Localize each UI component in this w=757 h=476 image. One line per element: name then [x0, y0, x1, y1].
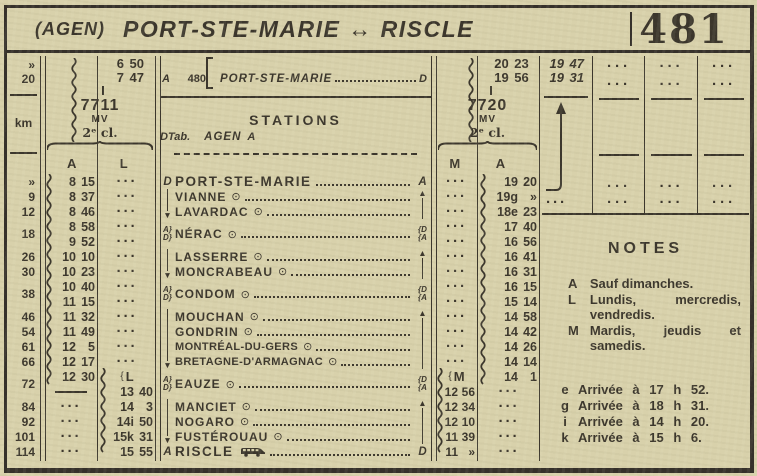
station-symbol-icon: ⊙: [231, 190, 240, 203]
no-service-row: ···: [436, 264, 477, 279]
station-row: ARISCLED: [160, 444, 431, 459]
km-value: 101: [7, 429, 40, 444]
note-key: A: [568, 276, 590, 291]
stations-title: STATIONS: [160, 112, 431, 128]
brace-icon: [47, 141, 153, 150]
note-text: Mardis, jeudis et samedis.: [590, 323, 741, 353]
km-value: 38: [7, 279, 40, 309]
no-service-row: ···: [479, 399, 539, 414]
time-cell: 846: [45, 204, 97, 219]
time-cell: 1442: [479, 324, 539, 339]
tab-label: Tab.: [168, 131, 190, 143]
notes-title: NOTES: [542, 240, 749, 258]
station-symbol-icon: ⊙: [328, 355, 337, 368]
no-service-row: ···: [99, 249, 155, 264]
time-cell: 1132: [45, 309, 97, 324]
note-key: M: [568, 323, 590, 353]
train-m-column: ·······································{…: [436, 174, 477, 459]
time-cell: 1555: [99, 444, 155, 459]
arrive-psm-time: 747: [71, 71, 144, 84]
no-service-row: ···: [99, 294, 155, 309]
time-cell: 1340: [99, 384, 155, 399]
ref-station: PORT-STE-MARIE: [220, 73, 332, 85]
dot-leader: [270, 454, 410, 456]
station-row: GONDRIN⊙: [160, 324, 431, 339]
no-service-row: ···: [45, 414, 97, 429]
no-service-row: ···: [436, 204, 477, 219]
train-type: MV: [436, 114, 539, 125]
depart-letter: D: [419, 73, 429, 85]
empty-train-column: ············: [699, 56, 749, 213]
left-direction-glyph: [160, 324, 175, 339]
note-key: k: [552, 430, 578, 446]
no-service-row: ···: [99, 219, 155, 234]
time-cell: 952: [45, 234, 97, 249]
no-service-row: ···: [436, 279, 477, 294]
arrive-letter: A: [247, 131, 255, 143]
station-row: A}D}NÉRAC⊙{D{A: [160, 219, 431, 249]
up-arrow-connector-icon: [544, 100, 590, 198]
km-value: 54: [7, 324, 40, 339]
station-symbol-icon: ⊙: [240, 415, 249, 428]
note-text: Arrivée à 14 h 20.: [578, 414, 745, 430]
dot-leader: [263, 319, 410, 321]
time-cell: 837: [45, 189, 97, 204]
km-value: 114: [7, 444, 40, 459]
station-row: VIANNE⊙▲: [160, 189, 431, 204]
arrival-note-row: gArrivée à 18 h 31.: [552, 398, 745, 414]
down-arrow-icon: ▼: [163, 271, 171, 280]
station-symbol-icon: ⊙: [273, 430, 282, 443]
no-service-row: ···: [99, 309, 155, 324]
dot-leader: [335, 80, 416, 82]
station-row: ▼MONCRABEAU⊙: [160, 264, 431, 279]
station-name: EAUZE: [175, 377, 221, 391]
km-value: 30: [7, 264, 40, 279]
table-frame: (AGEN) PORT-STE-MARIE ↔ RISCLE 481 » 20 …: [4, 5, 754, 473]
up-arrow-icon: ▲: [418, 309, 426, 318]
time-cell: 1023: [45, 264, 97, 279]
time-cell: 1426: [479, 339, 539, 354]
km-psm: 20: [22, 72, 35, 86]
station-symbol-icon: ⊙: [253, 250, 262, 263]
left-direction-glyph: [160, 189, 175, 204]
station-symbol-icon: ⊙: [303, 340, 312, 353]
no-service-row: ···: [45, 429, 97, 444]
up-arrow-icon: ▲: [418, 399, 426, 408]
bus-icon: [240, 446, 266, 457]
note-legend-row: LLundis, mercredis, vendredis.: [568, 292, 741, 322]
right-direction-glyph: [414, 429, 431, 444]
station-row: A}D}EAUZE⊙{D{A: [160, 369, 431, 399]
left-direction-glyph: ▼: [160, 204, 175, 219]
time-cell: 125: [45, 339, 97, 354]
train-number: 7720: [436, 97, 539, 115]
dot-leader: [267, 259, 410, 261]
note-legend-row: MMardis, jeudis et samedis.: [568, 323, 741, 353]
arrive-letter: A: [162, 73, 176, 85]
no-service-row: ···: [45, 444, 97, 459]
no-service-row: ···: [99, 234, 155, 249]
station-symbol-icon: ⊙: [226, 378, 235, 391]
down-arrow-icon: ▼: [163, 361, 171, 370]
note-text: Lundis, mercredis, vendredis.: [590, 292, 741, 322]
note-text: Arrivée à 15 h 6.: [578, 430, 745, 446]
note-text: Arrivée à 17 h 52.: [578, 382, 745, 398]
station-name: MANCIET: [175, 400, 237, 414]
km-unit-label: km: [7, 116, 40, 130]
right-direction-glyph: ▲: [414, 399, 431, 414]
time-cell: 15k31: [99, 429, 155, 444]
arrival-note-row: iArrivée à 14 h 20.: [552, 414, 745, 430]
time-cell: 1149: [45, 324, 97, 339]
ref-row-psm: A 480 PORT-STE-MARIE D: [162, 72, 429, 85]
depart-letter: D: [160, 131, 168, 143]
dot-leader: [316, 184, 410, 186]
right-direction-glyph: [414, 264, 431, 279]
no-service-row: ···: [479, 384, 539, 399]
no-service-dots: ···: [499, 443, 520, 460]
down-arrow-icon: ▼: [163, 211, 171, 220]
note-legend-row: ASauf dimanches.: [568, 276, 741, 291]
station-row: LASSERRE⊙▲: [160, 249, 431, 264]
no-service-row: ···: [99, 189, 155, 204]
bidirectional-arrow-icon: ↔: [348, 16, 373, 42]
dot-leader: [291, 274, 410, 276]
column-label-A: A: [67, 156, 76, 171]
stations-header: D Tab. AGEN A A 480 PORT-STE-MARIE D STA…: [160, 56, 431, 174]
rule: [544, 96, 588, 98]
dashed-rule: [174, 153, 418, 155]
no-service-row: ···: [479, 429, 539, 444]
dot-leader: [316, 349, 410, 351]
bus-icon: [240, 446, 266, 457]
no-service-row: ···: [479, 444, 539, 459]
no-service-dots: ···: [117, 353, 138, 370]
left-direction-glyph: [160, 414, 175, 429]
time-cell: 1217: [45, 354, 97, 369]
km-value: 26: [7, 249, 40, 264]
column-divider: [697, 56, 698, 213]
km-value: 66: [7, 354, 40, 369]
terminus-rule: [55, 391, 87, 393]
station-symbol-icon: ⊙: [228, 228, 237, 241]
terminus-row: [45, 384, 97, 399]
km-value: 84: [7, 399, 40, 414]
right-direction-glyph: [414, 339, 431, 354]
km-agen: »: [28, 58, 35, 72]
time-cell: 1040: [45, 279, 97, 294]
connection-time: 1947: [544, 57, 584, 70]
right-direction-glyph: {D{A: [414, 369, 431, 399]
km-value: 12: [7, 204, 40, 219]
no-service-row: ···: [99, 324, 155, 339]
column-label-L: L: [120, 156, 128, 171]
connection-time: 1931: [544, 71, 584, 84]
depart-psm-time: 1956: [461, 71, 529, 84]
time-cell: 1210: [436, 414, 477, 429]
station-name: LASSERRE: [175, 250, 248, 264]
station-name: LAVARDAC: [175, 205, 249, 219]
arrival-note-row: kArrivée à 15 h 6.: [552, 430, 745, 446]
left-direction-glyph: [160, 339, 175, 354]
station-symbol-icon: ⊙: [244, 325, 253, 338]
notes-legend: ASauf dimanches.LLundis, mercredis, vend…: [568, 276, 741, 354]
right-direction-glyph: [414, 414, 431, 429]
depart-agen-time: 650: [71, 57, 144, 70]
no-service-row: ···: [436, 309, 477, 324]
right-direction-glyph: ▲: [414, 189, 431, 204]
right-direction-glyph: {D{A: [414, 219, 431, 249]
time-cell: 815: [45, 174, 97, 189]
km-value: 46: [7, 309, 40, 324]
station-name: MONTRÉAL-DU-GERS: [175, 341, 298, 353]
rule: [160, 96, 431, 98]
column-divider: [539, 56, 540, 461]
dot-leader: [245, 199, 410, 201]
train-7720-header: 2023 1956 7720 MV 2ᵉ cl. M A: [436, 56, 539, 174]
station-name: RISCLE: [175, 444, 234, 459]
train-class: 2ᵉ cl.: [45, 125, 155, 140]
no-service-row: ···: [436, 249, 477, 264]
column-header: {L: [120, 369, 133, 384]
no-service-dots: ···: [546, 194, 567, 211]
time-cell: 141: [479, 369, 539, 384]
station-name: BRETAGNE-D'ARMAGNAC: [175, 356, 323, 368]
connecting-train-column: 1947 1931 ···: [542, 56, 592, 213]
note-key: i: [552, 414, 578, 430]
right-direction-glyph: {D{A: [414, 279, 431, 309]
km-column: »9121826303846546166728492101114: [7, 174, 40, 459]
time-cell: 18e23: [479, 204, 539, 219]
time-cell: 1656: [479, 234, 539, 249]
station-name: VIANNE: [175, 190, 226, 204]
no-service-row: ···: [436, 174, 477, 189]
connector: [490, 86, 492, 95]
no-service-row: ···: [436, 324, 477, 339]
empty-train-column: ············: [594, 56, 644, 213]
km-value: 61: [7, 339, 40, 354]
station-row: NOGARO⊙: [160, 414, 431, 429]
station-row: ▼BRETAGNE-D'ARMAGNAC⊙: [160, 354, 431, 369]
no-service-row: ···: [99, 354, 155, 369]
left-direction-glyph: ▼: [160, 429, 175, 444]
no-service-row: ···: [436, 189, 477, 204]
time-cell: 19g»: [479, 189, 539, 204]
station-name: NÉRAC: [175, 227, 223, 241]
ref-station: AGEN: [204, 131, 241, 143]
page-title: PORT-STE-MARIE ↔ RISCLE: [123, 16, 474, 43]
train-class: 2ᵉ cl.: [436, 125, 539, 140]
down-arrow-icon: ▼: [163, 436, 171, 445]
dot-leader: [239, 386, 410, 388]
time-cell: 1615: [479, 279, 539, 294]
title-from: PORT-STE-MARIE: [123, 16, 340, 42]
station-name: NOGARO: [175, 415, 235, 429]
no-service-row: ···: [99, 339, 155, 354]
time-cell: 1458: [479, 309, 539, 324]
station-row: A}D}CONDOM⊙{D{A: [160, 279, 431, 309]
time-cell: 1920: [479, 174, 539, 189]
left-direction-glyph: A}D}: [160, 279, 175, 309]
up-arrow-icon: ▲: [418, 189, 426, 198]
title-bar: (AGEN) PORT-STE-MARIE ↔ RISCLE 481: [7, 8, 750, 53]
notes-arrivals: eArrivée à 17 h 52.gArrivée à 18 h 31.iA…: [552, 382, 745, 446]
time-cell: 858: [45, 219, 97, 234]
brace-icon: [438, 141, 537, 150]
time-cell: 1641: [479, 249, 539, 264]
train-type: MV: [45, 114, 155, 125]
left-direction-glyph: [160, 249, 175, 264]
time-cell: 1631: [479, 264, 539, 279]
no-service-dots: ···: [61, 443, 82, 460]
station-name: FUSTÉROUAU: [175, 430, 268, 444]
km-column-header: » 20 km: [7, 56, 40, 174]
note-text: Arrivée à 18 h 31.: [578, 398, 745, 414]
dot-leader: [267, 214, 410, 216]
rule: [10, 152, 37, 154]
train-l-column: ·······································{…: [99, 174, 155, 459]
station-symbol-icon: ⊙: [241, 288, 250, 301]
no-service-row: ···: [436, 294, 477, 309]
left-direction-glyph: A}D}: [160, 219, 175, 249]
right-direction-glyph: ▲: [414, 249, 431, 264]
right-direction-glyph: D: [414, 444, 431, 459]
station-name: GONDRIN: [175, 325, 239, 339]
dot-leader: [257, 334, 410, 336]
bracket-icon: [206, 57, 213, 89]
dot-leader: [255, 409, 410, 411]
station-row: ▼LAVARDAC⊙: [160, 204, 431, 219]
km-value: 18: [7, 219, 40, 249]
time-cell: 1514: [479, 294, 539, 309]
km-value: 92: [7, 414, 40, 429]
column-divider: [592, 56, 593, 213]
arrival-note-row: eArrivée à 17 h 52.: [552, 382, 745, 398]
station-row: DPORT-STE-MARIEA: [160, 174, 431, 189]
no-service-row: ···: [99, 204, 155, 219]
dot-leader: [341, 364, 410, 366]
station-symbol-icon: ⊙: [242, 400, 251, 413]
no-service-row: ···: [436, 339, 477, 354]
train-a-column: 8158378468589521010102310401115113211491…: [45, 174, 97, 459]
time-cell: 1115: [45, 294, 97, 309]
right-direction-glyph: [414, 324, 431, 339]
title-origin: (AGEN): [35, 19, 105, 40]
note-key: L: [568, 292, 590, 322]
extra-trains-grid: 1947 1931 ··· ··························…: [542, 56, 749, 215]
dot-leader: [241, 236, 410, 238]
time-cell: 1740: [479, 219, 539, 234]
left-direction-glyph: ▼: [160, 264, 175, 279]
arrive-agen-time: 2023: [461, 57, 529, 70]
no-service-row: ···: [479, 414, 539, 429]
km-value: 9: [7, 189, 40, 204]
no-service-row: ···: [436, 354, 477, 369]
time-cell: 1139: [436, 429, 477, 444]
table-number: 481: [632, 6, 736, 53]
time-cell: 1230: [45, 369, 97, 384]
empty-train-column: ············: [646, 56, 697, 213]
time-cell: 1256: [436, 384, 477, 399]
left-direction-glyph: D: [160, 174, 175, 189]
time-cell: 143: [99, 399, 155, 414]
station-name: MOUCHAN: [175, 310, 245, 324]
station-symbol-icon: ⊙: [250, 310, 259, 323]
tab-number: 480: [176, 73, 206, 85]
station-name: PORT-STE-MARIE: [175, 174, 312, 189]
left-direction-glyph: ▼: [160, 354, 175, 369]
table-body: » 20 km 650 747 7711 MV 2ᵉ cl. A L D Tab…: [7, 56, 750, 468]
left-direction-glyph: A}D}: [160, 369, 175, 399]
station-name: CONDOM: [175, 287, 236, 301]
rule: [10, 94, 37, 96]
note-key: g: [552, 398, 578, 414]
right-section: 1947 1931 ··· ··························…: [542, 56, 749, 466]
column-divider: [644, 56, 645, 213]
right-direction-glyph: ▲: [414, 309, 431, 324]
train-number: 7711: [45, 97, 155, 115]
stations-column: DPORT-STE-MARIEAVIANNE⊙▲▼LAVARDAC⊙A}D}NÉ…: [160, 174, 431, 459]
note-key: e: [552, 382, 578, 398]
km-value: 72: [7, 369, 40, 399]
left-direction-glyph: [160, 309, 175, 324]
time-cell: 1234: [436, 399, 477, 414]
column-label-A: A: [496, 156, 505, 171]
left-direction-glyph: [160, 399, 175, 414]
station-row: MONTRÉAL-DU-GERS⊙: [160, 339, 431, 354]
station-row: ▼FUSTÉROUAU⊙: [160, 429, 431, 444]
station-name: MONCRABEAU: [175, 265, 273, 279]
up-arrow-icon: ▲: [418, 249, 426, 258]
km-value: »: [7, 174, 40, 189]
station-row: MANCIET⊙▲: [160, 399, 431, 414]
no-service-dots: ···: [446, 353, 467, 370]
station-symbol-icon: ⊙: [278, 265, 287, 278]
title-to: RISCLE: [381, 16, 474, 42]
no-service-row: ···: [99, 279, 155, 294]
column-header: {M: [448, 369, 464, 384]
dot-leader: [287, 439, 410, 441]
column-header-row: {M: [436, 369, 477, 384]
time-cell: 1010: [45, 249, 97, 264]
column-label-M: M: [449, 156, 460, 171]
train-7711-header: 650 747 7711 MV 2ᵉ cl. A L: [45, 56, 155, 174]
train-a-return-column: 192019g»18e23174016561641163116151514145…: [479, 174, 539, 459]
left-direction-glyph: A: [160, 444, 175, 459]
no-service-row: ···: [436, 219, 477, 234]
no-service-row: ···: [99, 174, 155, 189]
column-header-row: {L: [99, 369, 155, 384]
time-cell: 14i50: [99, 414, 155, 429]
timetable-page: (AGEN) PORT-STE-MARIE ↔ RISCLE 481 » 20 …: [0, 0, 757, 476]
no-service-row: ···: [45, 399, 97, 414]
dot-leader: [254, 296, 410, 298]
station-row: MOUCHAN⊙▲: [160, 309, 431, 324]
dot-leader: [253, 424, 410, 426]
no-service-row: ···: [436, 234, 477, 249]
note-text: Sauf dimanches.: [590, 276, 741, 291]
right-direction-glyph: [414, 354, 431, 369]
right-direction-glyph: A: [414, 174, 431, 189]
time-cell: 1414: [479, 354, 539, 369]
station-symbol-icon: ⊙: [254, 205, 263, 218]
no-service-row: ···: [99, 264, 155, 279]
connector: [102, 86, 104, 95]
time-cell: 11»: [436, 444, 477, 459]
right-direction-glyph: [414, 204, 431, 219]
